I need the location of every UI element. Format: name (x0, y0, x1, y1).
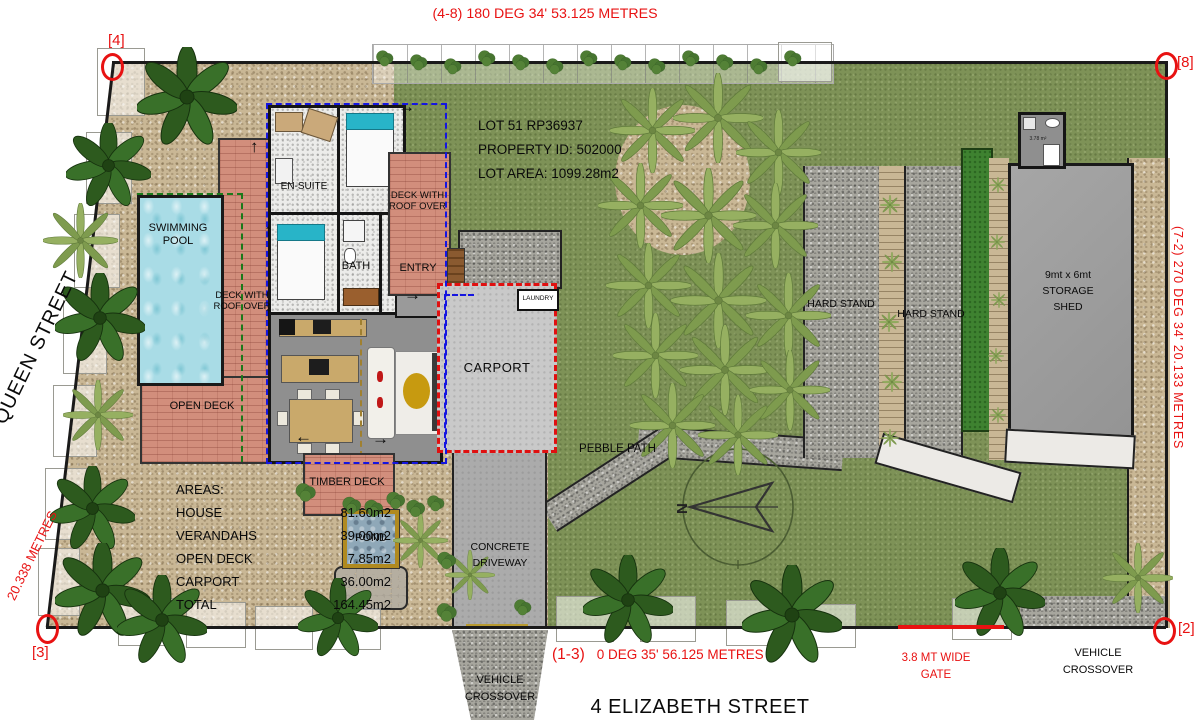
entry-walkway (458, 230, 562, 289)
lot-number: LOT 51 RP36937 (478, 118, 583, 134)
dimension-bottom-text: 0 DEG 35' 56.125 METRES (597, 647, 764, 662)
boundary-right (1165, 63, 1168, 628)
corner-marker-8 (1155, 52, 1178, 80)
coffee-table (403, 373, 430, 409)
wardrobe (301, 108, 339, 142)
deck-roof-right-label: DECK WITH ROOF OVER (389, 190, 446, 212)
shed-wc-label: 3.78 m² (1023, 137, 1053, 143)
corner-marker-2 (1153, 617, 1176, 645)
chair (325, 389, 340, 400)
bath-label: BATH (332, 260, 380, 273)
door-panel (1043, 144, 1060, 166)
concrete-driveway-label: CONCRETE DRIVEWAY (458, 540, 542, 572)
property-id: PROPERTY ID: 502000 (478, 142, 622, 158)
bed-pillows (346, 113, 394, 130)
boundary-top (112, 61, 1168, 64)
direction-arrow: → (404, 286, 421, 303)
hard-stand-1-label: HARD STAND (806, 298, 876, 310)
chair (277, 411, 288, 426)
hard-stand-1 (803, 166, 883, 458)
room-divider-line (360, 319, 362, 457)
direction-arrow: ↑ (264, 222, 273, 239)
corner-marker-4 (101, 53, 124, 81)
bath-vanity (343, 288, 379, 306)
basin-icon (1023, 117, 1036, 130)
areas-table: AREAS: HOUSE 81.60m2 VERANDAHS 39.00m2 O… (176, 478, 398, 616)
street-bottom: 4 ELIZABETH STREET (555, 696, 845, 720)
area-value: 7.85m2 (348, 547, 391, 570)
entry-label: ENTRY (392, 262, 444, 275)
areas-row: CARPORT 36.00m2 (176, 570, 391, 593)
sofa (367, 347, 395, 439)
north-label: N (674, 503, 691, 514)
site-plan: 3.78 m² (0, 0, 1200, 720)
area-name: HOUSE (176, 501, 222, 524)
area-name: TOTAL (176, 593, 217, 616)
hedge-strip (372, 44, 834, 84)
garden-box (952, 598, 1012, 640)
dimension-bottom-prefix: (1-3) (552, 646, 585, 664)
dimension-bottom: (1-3) 0 DEG 35' 56.125 METRES (552, 646, 764, 664)
direction-arrow: ↑ (264, 304, 273, 321)
open-deck-label: OPEN DECK (152, 400, 252, 413)
garden-box (86, 132, 132, 204)
north-compass: N (672, 445, 802, 570)
vehicle-crossover-right-label: VEHICLE CROSSOVER (1042, 645, 1154, 678)
hard-stand-2-label: HARD STAND (896, 308, 966, 320)
corner-marker-3 (36, 614, 59, 644)
direction-arrow: → (372, 430, 389, 447)
bed-pillows (277, 224, 325, 241)
direction-arrow: ← (295, 428, 312, 445)
laundry-label: LAUNDRY (519, 295, 557, 303)
chair (297, 389, 312, 400)
area-value: 164.45m2 (333, 593, 391, 616)
sink-dark (279, 319, 295, 335)
area-name: OPEN DECK (176, 547, 253, 570)
garden-box (640, 596, 696, 642)
gate-line (898, 625, 1004, 629)
chair (353, 411, 364, 426)
area-name: VERANDAHS (176, 524, 257, 547)
open-deck (140, 376, 272, 464)
carport-setback-line (444, 294, 474, 296)
deck-roof-left-label: DECK WITH ROOF OVER (213, 290, 271, 312)
sofa-cushion (377, 371, 383, 382)
stepping-path (989, 158, 1009, 460)
areas-row: HOUSE 81.60m2 (176, 501, 391, 524)
lot-area: LOT AREA: 1099.28m2 (478, 166, 619, 182)
garden-box (38, 548, 80, 616)
areas-row: OPEN DECK 7.85m2 (176, 547, 391, 570)
vehicle-crossover-right-area (1020, 596, 1166, 628)
laundry-box: LAUNDRY (517, 289, 559, 311)
area-value: 39.00m2 (340, 524, 391, 547)
areas-title: AREAS: (176, 478, 398, 501)
pebble-path-label: PEBBLE PATH (565, 443, 670, 457)
area-value: 81.60m2 (340, 501, 391, 524)
cooktop-icon (309, 359, 329, 375)
swimming-pool-label: SWIMMING POOL (142, 222, 214, 248)
area-value: 36.00m2 (340, 570, 391, 593)
garden-box (726, 600, 784, 646)
carport-label: CARPORT (437, 360, 557, 375)
sofa-cushion (377, 397, 383, 408)
areas-row: VERANDAHS 39.00m2 (176, 524, 391, 547)
path-below-shed (1004, 429, 1136, 470)
gate-label: 3.8 MT WIDE GATE (890, 650, 982, 685)
toilet-icon (1045, 118, 1060, 128)
direction-arrow: ↑ (250, 138, 259, 155)
corner-label-3: [3] (32, 644, 49, 662)
dimension-right: (7-2) 270 DEG 34' 20.133 METRES (1171, 226, 1185, 449)
house-bedroom-wing (268, 105, 406, 324)
dimension-top: (4-8) 180 DEG 34' 53.125 METRES (390, 6, 700, 23)
corner-label-2: [2] (1178, 620, 1195, 638)
direction-arrow: → (398, 98, 415, 115)
garden-box (556, 596, 614, 642)
shed-wc-room: 3.78 m² (1018, 112, 1066, 169)
corner-label-8: [8] (1177, 54, 1194, 72)
area-name: CARPORT (176, 570, 239, 593)
storage-shed-label: 9mt x 6mt STORAGE SHED (1032, 268, 1104, 315)
garden-bed-ground (615, 105, 750, 255)
shower (343, 220, 365, 242)
areas-row: TOTAL 164.45m2 (176, 593, 391, 616)
en-suite-label: EN-SUITE (272, 181, 336, 193)
stove-icon (313, 320, 331, 334)
vehicle-crossover-bottom-label: VEHICLE CROSSOVER (452, 672, 548, 705)
corner-label-4: [4] (108, 32, 125, 50)
wardrobe (275, 112, 303, 132)
garden-box (118, 598, 178, 646)
